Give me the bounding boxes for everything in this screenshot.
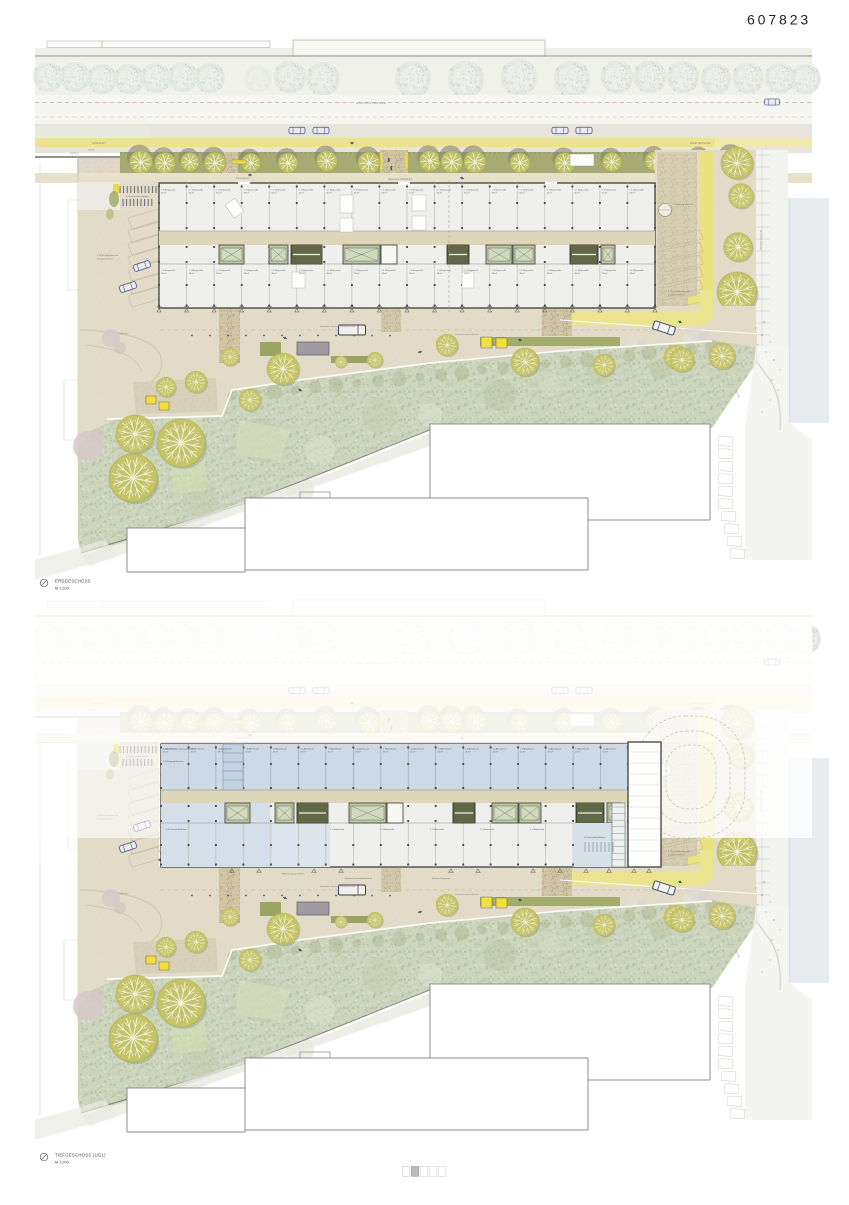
svg-text:Tiefgarage: Tiefgarage	[118, 332, 129, 335]
svg-text:1:1 Mietparzelle: 1:1 Mietparzelle	[492, 189, 507, 192]
svg-text:1:1 Mietparzelle: 1:1 Mietparzelle	[382, 189, 397, 192]
svg-text:E-Ladestationen: E-Ladestationen	[668, 294, 685, 297]
svg-text:1.1 Mietparzelle: 1.1 Mietparzelle	[480, 828, 495, 831]
svg-text:5.4 Übergang/Terrasse: 5.4 Übergang/Terrasse	[163, 760, 184, 763]
svg-text:48 m²: 48 m²	[327, 272, 332, 275]
svg-text:48 m²: 48 m²	[244, 272, 249, 275]
svg-text:47 m²: 47 m²	[218, 750, 223, 753]
svg-text:1.3 Abstellraum: 1.3 Abstellraum	[548, 748, 562, 751]
svg-text:1:1 Mietparzelle: 1:1 Mietparzelle	[299, 189, 314, 192]
svg-text:48 m²: 48 m²	[575, 272, 580, 275]
svg-text:1:1 Mietparzelle: 1:1 Mietparzelle	[271, 189, 286, 192]
svg-text:1:1 Mietparzelle: 1:1 Mietparzelle	[327, 189, 342, 192]
svg-text:1:1 Mietparzelle: 1:1 Mietparzelle	[299, 269, 314, 272]
svg-text:1.3 Abstellraum: 1.3 Abstellraum	[245, 748, 259, 751]
svg-text:47 m²: 47 m²	[273, 750, 278, 753]
svg-text:1:1 Mietparzelle: 1:1 Mietparzelle	[630, 189, 645, 192]
svg-text:1:1 Mietparzelle: 1:1 Mietparzelle	[327, 269, 342, 272]
svg-text:24 Fahrradabstellplätze: 24 Fahrradabstellplätze	[126, 195, 150, 198]
svg-text:Mietergärten: Mietergärten	[236, 177, 250, 180]
svg-text:Feuerwehraufstellfläche: Feuerwehraufstellfläche	[455, 333, 479, 336]
svg-text:1:1 Mietparzelle: 1:1 Mietparzelle	[216, 189, 231, 192]
svg-text:1:1 Mietparzelle: 1:1 Mietparzelle	[437, 189, 452, 192]
svg-text:1:1 Mietparzelle: 1:1 Mietparzelle	[437, 269, 452, 272]
svg-text:1.3 Abstellraum: 1.3 Abstellraum	[273, 748, 287, 751]
svg-text:47 m²: 47 m²	[438, 750, 443, 753]
svg-text:48 m²: 48 m²	[299, 272, 304, 275]
svg-text:48 m²: 48 m²	[437, 272, 442, 275]
svg-text:47 m²: 47 m²	[493, 750, 498, 753]
svg-text:ERDGESCHOSS: ERDGESCHOSS	[55, 579, 91, 584]
svg-text:BÜLOWSTRASSE: BÜLOWSTRASSE	[759, 230, 762, 250]
svg-text:1:1 Mietparzelle: 1:1 Mietparzelle	[189, 189, 204, 192]
svg-text:HAUPTEINGANG: HAUPTEINGANG	[690, 141, 711, 145]
svg-text:60 m²: 60 m²	[327, 191, 332, 194]
svg-text:1.3 Abstellraum: 1.3 Abstellraum	[328, 748, 342, 751]
svg-text:5.5 Niederspannungshauptvertei: 5.5 Niederspannungshauptverteiler	[163, 748, 194, 751]
svg-text:allgemeine Platzfläche: allgemeine Platzfläche	[388, 178, 413, 181]
svg-text:48 m²: 48 m²	[271, 272, 276, 275]
svg-text:47 m²: 47 m²	[575, 750, 580, 753]
svg-text:47 m²: 47 m²	[548, 750, 553, 753]
svg-text:60 m²: 60 m²	[602, 191, 607, 194]
svg-text:1.1 Mietparzelle: 1.1 Mietparzelle	[380, 828, 395, 831]
svg-text:60 m²: 60 m²	[271, 191, 276, 194]
svg-text:1.1 Mietparzelle: 1.1 Mietparzelle	[330, 828, 345, 831]
svg-text:60 m²: 60 m²	[630, 191, 635, 194]
svg-text:Einfahrt Tiefgarage: Einfahrt Tiefgarage	[432, 877, 451, 880]
svg-text:1:1 Mietparzelle: 1:1 Mietparzelle	[271, 269, 286, 272]
svg-text:48 m²: 48 m²	[189, 272, 194, 275]
svg-text:1:1 Mietparzelle: 1:1 Mietparzelle	[216, 269, 231, 272]
svg-text:48 m²: 48 m²	[216, 272, 221, 275]
svg-text:1.3 Abstellraum: 1.3 Abstellraum	[355, 748, 369, 751]
svg-text:60 m²: 60 m²	[216, 191, 221, 194]
svg-text:1.3 Abstellraum: 1.3 Abstellraum	[300, 748, 314, 751]
svg-text:607823: 607823	[747, 12, 811, 28]
svg-text:M 1:200: M 1:200	[55, 587, 69, 591]
svg-text:47 m²: 47 m²	[245, 750, 250, 753]
svg-text:AUSFAHRT: AUSFAHRT	[92, 141, 106, 145]
svg-text:1:1 Mietparzelle: 1:1 Mietparzelle	[492, 269, 507, 272]
svg-text:60 m²: 60 m²	[189, 191, 194, 194]
svg-text:1:1 Mietparzelle: 1:1 Mietparzelle	[382, 269, 397, 272]
svg-text:48 m²: 48 m²	[382, 272, 387, 275]
svg-text:1.3 Abstellraum: 1.3 Abstellraum	[465, 748, 479, 751]
svg-text:1.1 Mietparzelle: 1.1 Mietparzelle	[530, 828, 545, 831]
svg-text:Einfahrt Fahrradabstellraum: Einfahrt Fahrradabstellraum	[345, 877, 372, 880]
svg-text:47 m²: 47 m²	[383, 750, 388, 753]
svg-text:TIEFGESCHOSS (UG1): TIEFGESCHOSS (UG1)	[55, 1153, 106, 1158]
svg-text:60 m²: 60 m²	[519, 191, 524, 194]
svg-text:48 m²: 48 m²	[519, 272, 524, 275]
svg-text:60 m²: 60 m²	[437, 191, 442, 194]
svg-text:526.50: 526.50	[70, 153, 77, 155]
svg-text:1:1 Mietparzelle: 1:1 Mietparzelle	[409, 189, 424, 192]
svg-text:60 m²: 60 m²	[244, 191, 249, 194]
svg-text:M 1:200: M 1:200	[55, 1161, 69, 1165]
svg-text:48 m²: 48 m²	[409, 272, 414, 275]
svg-text:47 m²: 47 m²	[520, 750, 525, 753]
svg-text:47 m²: 47 m²	[191, 750, 196, 753]
svg-text:47 m²: 47 m²	[410, 750, 415, 753]
svg-text:1:1 Mietparzelle: 1:1 Mietparzelle	[464, 189, 479, 192]
svg-text:1:1 Mietparzelle: 1:1 Mietparzelle	[575, 189, 590, 192]
svg-text:1.3 Abstellraum: 1.3 Abstellraum	[603, 748, 617, 751]
svg-text:Nebeneingang Tiefhof: Nebeneingang Tiefhof	[282, 874, 304, 876]
svg-text:1:1 Mietparzelle: 1:1 Mietparzelle	[519, 189, 534, 192]
svg-text:1:1 Mietparzelle: 1:1 Mietparzelle	[244, 269, 259, 272]
svg-text:1:1 Mietparzelle: 1:1 Mietparzelle	[575, 269, 590, 272]
svg-text:HANSASTRASSE: HANSASTRASSE	[356, 101, 386, 105]
svg-text:1:1 Mietparzelle: 1:1 Mietparzelle	[630, 269, 645, 272]
svg-text:1.3 Abstellraum: 1.3 Abstellraum	[218, 748, 232, 751]
svg-text:48 m²: 48 m²	[547, 272, 552, 275]
svg-text:1:1 Mietparzelle: 1:1 Mietparzelle	[547, 189, 562, 192]
svg-text:Holgang zum UG: Holgang zum UG	[676, 204, 693, 206]
svg-text:1:1 Mietparzelle: 1:1 Mietparzelle	[161, 269, 176, 272]
svg-text:befahrbare Fläche für Müllfahr: befahrbare Fläche für Müllfahrzeuge	[320, 325, 356, 328]
svg-text:48 m²: 48 m²	[161, 272, 166, 275]
svg-text:48 m²: 48 m²	[630, 272, 635, 275]
svg-text:1:1 Mietparzelle: 1:1 Mietparzelle	[409, 269, 424, 272]
svg-text:1:1 Mietparzelle: 1:1 Mietparzelle	[602, 269, 617, 272]
svg-text:48 m²: 48 m²	[602, 272, 607, 275]
svg-text:1.3 Abstellraum: 1.3 Abstellraum	[575, 748, 589, 751]
svg-text:60 m²: 60 m²	[299, 191, 304, 194]
svg-text:1:1 Mietparzelle: 1:1 Mietparzelle	[161, 189, 176, 192]
svg-text:6.10 zentrale Müllraum: 6.10 zentrale Müllraum	[166, 828, 187, 831]
svg-text:1.1 Mietparzelle: 1.1 Mietparzelle	[430, 828, 445, 831]
svg-text:60 m²: 60 m²	[492, 191, 497, 194]
svg-text:60 m²: 60 m²	[354, 191, 359, 194]
svg-text:48 m²: 48 m²	[492, 272, 497, 275]
svg-text:47 m²: 47 m²	[300, 750, 305, 753]
svg-text:47 m²: 47 m²	[603, 750, 608, 753]
svg-text:1:1 Mietparzelle: 1:1 Mietparzelle	[547, 269, 562, 272]
svg-text:1:1 Mietparzelle: 1:1 Mietparzelle	[354, 189, 369, 192]
svg-text:60 m²: 60 m²	[382, 191, 387, 194]
svg-text:1.3 Abstellraum: 1.3 Abstellraum	[438, 748, 452, 751]
svg-text:60 m²: 60 m²	[464, 191, 469, 194]
svg-text:1.3 Abstellraum: 1.3 Abstellraum	[410, 748, 424, 751]
svg-text:5 PKW Stellplätze mit: 5 PKW Stellplätze mit	[97, 254, 118, 257]
svg-text:1:1 Mietparzelle: 1:1 Mietparzelle	[519, 269, 534, 272]
svg-text:47 m²: 47 m²	[163, 750, 168, 753]
svg-text:E-Ladestationen: E-Ladestationen	[97, 258, 114, 261]
svg-text:48 m²: 48 m²	[354, 272, 359, 275]
svg-text:1.3 Abstellraum: 1.3 Abstellraum	[383, 748, 397, 751]
svg-text:526.50: 526.50	[88, 150, 95, 152]
svg-text:47 m²: 47 m²	[355, 750, 360, 753]
svg-text:1:1 Mietparzelle: 1:1 Mietparzelle	[244, 189, 259, 192]
svg-text:1:1 Mietparzelle: 1:1 Mietparzelle	[602, 189, 617, 192]
svg-text:60 m²: 60 m²	[547, 191, 552, 194]
svg-text:4 PKW Stellplätze mit: 4 PKW Stellplätze mit	[668, 290, 689, 293]
svg-text:1:1 Mietparzelle: 1:1 Mietparzelle	[189, 269, 204, 272]
svg-text:47 m²: 47 m²	[328, 750, 333, 753]
svg-text:1.3 Abstellraum: 1.3 Abstellraum	[520, 748, 534, 751]
svg-text:1:1 Mietparzelle: 1:1 Mietparzelle	[464, 269, 479, 272]
svg-text:47 m²: 47 m²	[465, 750, 470, 753]
svg-text:60 m²: 60 m²	[409, 191, 414, 194]
svg-text:1.3 Abstellraum: 1.3 Abstellraum	[493, 748, 507, 751]
svg-text:1:1 Mietparzelle: 1:1 Mietparzelle	[354, 269, 369, 272]
svg-text:48 m²: 48 m²	[464, 272, 469, 275]
svg-text:60 m²: 60 m²	[575, 191, 580, 194]
svg-text:4.3 Fahrradabstellplätze: 4.3 Fahrradabstellplätze	[584, 836, 606, 839]
svg-text:60 m²: 60 m²	[161, 191, 166, 194]
